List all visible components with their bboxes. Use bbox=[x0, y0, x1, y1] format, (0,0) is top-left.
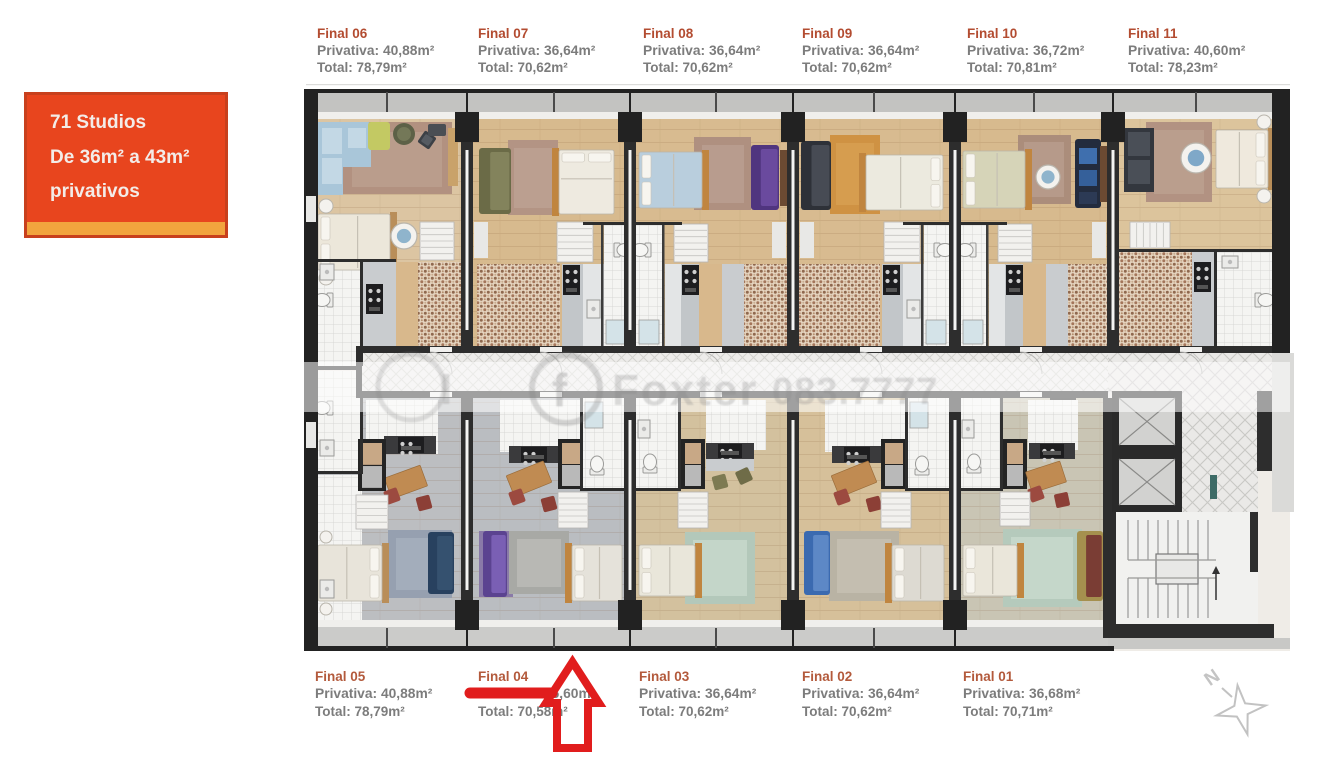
svg-text:Final 06: Final 06 bbox=[317, 26, 368, 41]
svg-text:De 36m² a 43m²: De 36m² a 43m² bbox=[50, 147, 189, 168]
svg-text:Total: 70,62m²: Total: 70,62m² bbox=[478, 60, 568, 75]
svg-text:Privativa: 36,64m²: Privativa: 36,64m² bbox=[802, 43, 920, 58]
svg-text:Total: 70,81m²: Total: 70,81m² bbox=[967, 60, 1057, 75]
svg-text:Final 04: Final 04 bbox=[478, 669, 529, 684]
svg-text:Final 07: Final 07 bbox=[478, 26, 528, 41]
svg-text:Final 02: Final 02 bbox=[802, 669, 852, 684]
svg-text:Total: 78,79m²: Total: 78,79m² bbox=[315, 704, 405, 719]
svg-text:Foxter: Foxter bbox=[612, 366, 758, 415]
svg-text:Final 11: Final 11 bbox=[1128, 26, 1178, 41]
svg-text:Privativa: 36,72m²: Privativa: 36,72m² bbox=[967, 43, 1085, 58]
svg-text:Final 08: Final 08 bbox=[643, 26, 694, 41]
svg-text:Privativa: 40,60m²: Privativa: 40,60m² bbox=[1128, 43, 1246, 58]
svg-text:Privativa: 36,64m²: Privativa: 36,64m² bbox=[643, 43, 761, 58]
svg-text:Privativa: 36,68m²: Privativa: 36,68m² bbox=[963, 686, 1081, 701]
svg-text:Final 03: Final 03 bbox=[639, 669, 690, 684]
svg-text:Privativa: 36,64m²: Privativa: 36,64m² bbox=[639, 686, 757, 701]
svg-text:Privativa: 40,88m²: Privativa: 40,88m² bbox=[317, 43, 435, 58]
svg-text:Final 10: Final 10 bbox=[967, 26, 1017, 41]
svg-text:71 Studios: 71 Studios bbox=[50, 112, 146, 133]
svg-text:Total: 70,62m²: Total: 70,62m² bbox=[639, 704, 729, 719]
svg-text:privativos: privativos bbox=[50, 181, 140, 202]
svg-text:Privativa: 36,64m²: Privativa: 36,64m² bbox=[802, 686, 920, 701]
svg-text:Total: 70,62m²: Total: 70,62m² bbox=[643, 60, 733, 75]
svg-text:Privativa: 36,64m²: Privativa: 36,64m² bbox=[478, 43, 596, 58]
svg-text:Total: 70,71m²: Total: 70,71m² bbox=[963, 704, 1053, 719]
svg-text:f: f bbox=[552, 364, 568, 416]
svg-text:I: I bbox=[440, 365, 452, 414]
svg-text:Total: 78,79m²: Total: 78,79m² bbox=[317, 60, 407, 75]
svg-text:Total: 70,62m²: Total: 70,62m² bbox=[802, 60, 892, 75]
svg-text:Total: 70,62m²: Total: 70,62m² bbox=[802, 704, 892, 719]
svg-text:Final 09: Final 09 bbox=[802, 26, 852, 41]
svg-text:083.7777: 083.7777 bbox=[772, 371, 939, 413]
svg-text:Final 05: Final 05 bbox=[315, 669, 366, 684]
svg-text:Total: 78,23m²: Total: 78,23m² bbox=[1128, 60, 1218, 75]
svg-text:Privativa: 40,88m²: Privativa: 40,88m² bbox=[315, 686, 433, 701]
svg-text:Final 01: Final 01 bbox=[963, 669, 1014, 684]
